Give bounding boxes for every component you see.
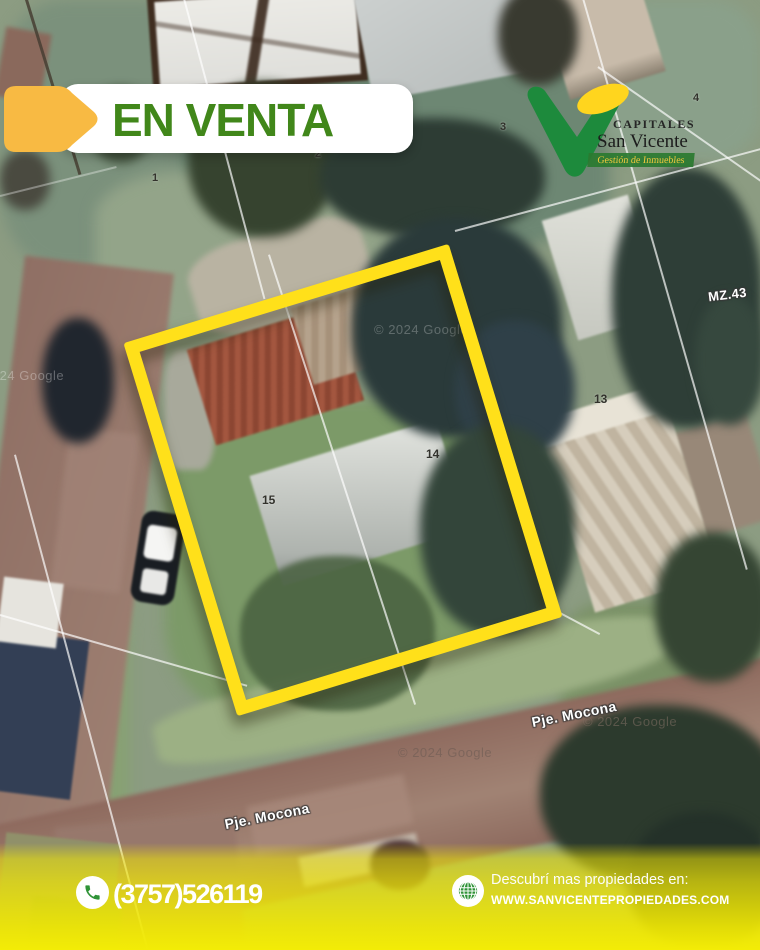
arrow-tag-icon xyxy=(2,84,102,154)
phone-icon xyxy=(83,883,102,902)
google-watermark: © 2024 Google xyxy=(0,368,64,383)
brand-tagline-label: Gestión de Inmuebles xyxy=(597,155,685,166)
website-url: WWW.SANVICENTEPROPIEDADES.COM xyxy=(491,893,729,907)
phone-number: (3757)526119 xyxy=(113,879,262,910)
brand-top-label: CAPITALES xyxy=(613,117,695,132)
discover-text: Descubrí mas propiedades en: xyxy=(491,872,688,888)
property-listing-poster: 1 2 3 4 13 14 15 Pje. Mocona Pje. Mocona… xyxy=(0,0,760,950)
tree xyxy=(695,295,760,425)
tree xyxy=(0,150,50,210)
building-roof xyxy=(0,577,64,649)
phone-icon-circle xyxy=(76,876,109,909)
tree xyxy=(655,532,760,682)
brand-name-label: San Vicente xyxy=(597,131,688,153)
globe-icon xyxy=(457,880,479,902)
google-watermark: © 2024 Google xyxy=(583,714,677,729)
parcel-number: 3 xyxy=(500,121,506,133)
parcel-number: 13 xyxy=(594,392,607,406)
parcel-number: 1 xyxy=(152,172,158,184)
for-sale-label: EN VENTA xyxy=(112,93,333,147)
globe-icon-circle xyxy=(452,875,484,907)
google-watermark: © 2024 Google xyxy=(398,745,492,760)
brand-tagline-bar: Gestión de Inmuebles xyxy=(587,153,694,167)
